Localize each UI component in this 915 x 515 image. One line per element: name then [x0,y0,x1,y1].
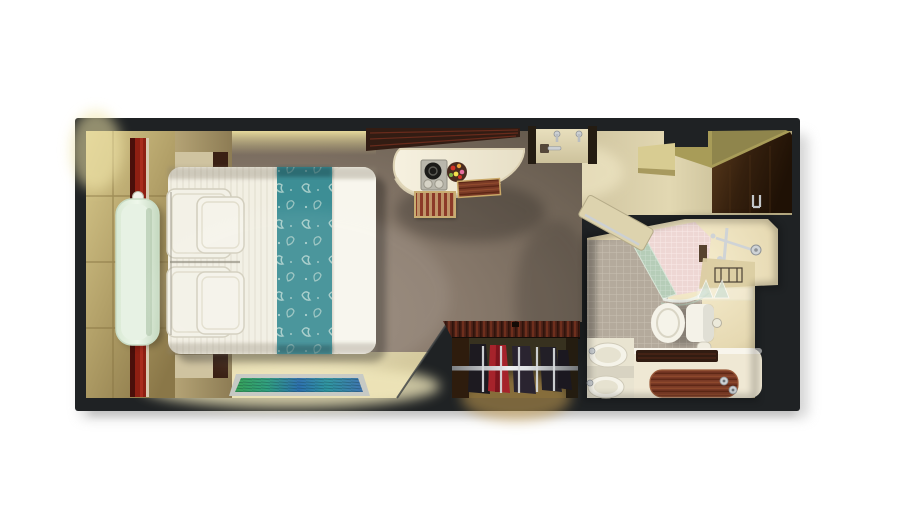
rug-texture [235,378,363,392]
floor-plan-image [0,0,915,515]
wall-notch [664,118,708,147]
flush-button [713,319,722,328]
door-frame-right [588,126,597,164]
kettle [425,163,442,180]
serving-tray [421,160,447,190]
cup-left [424,180,432,188]
runner-top-shade [277,167,332,177]
basin-top-inner [595,347,621,363]
wooden-tray [650,370,738,397]
fruit-bowl [447,162,467,182]
closet-top-wood [443,321,580,338]
counter-wood-strip [636,350,718,362]
glass-bench-edge [146,208,152,336]
wooden-bench [457,179,500,198]
bench-top [457,179,500,198]
floor-plan-svg [0,0,915,515]
stool-top [415,192,455,217]
bed-top-shade [168,167,376,179]
closet-knob [512,322,519,327]
sink-basins [587,338,634,398]
wooden-stool [415,192,456,219]
door-frame-left [528,126,536,164]
cup-right [435,180,443,188]
basin-bottom-inner [594,380,618,394]
tile-corner-glow [70,110,122,190]
carpet-sheen [150,210,450,380]
ceiling-box-wedge [638,143,675,176]
bathroom [587,219,778,398]
closet-rail [452,366,578,371]
glass-bench-top [121,204,150,340]
